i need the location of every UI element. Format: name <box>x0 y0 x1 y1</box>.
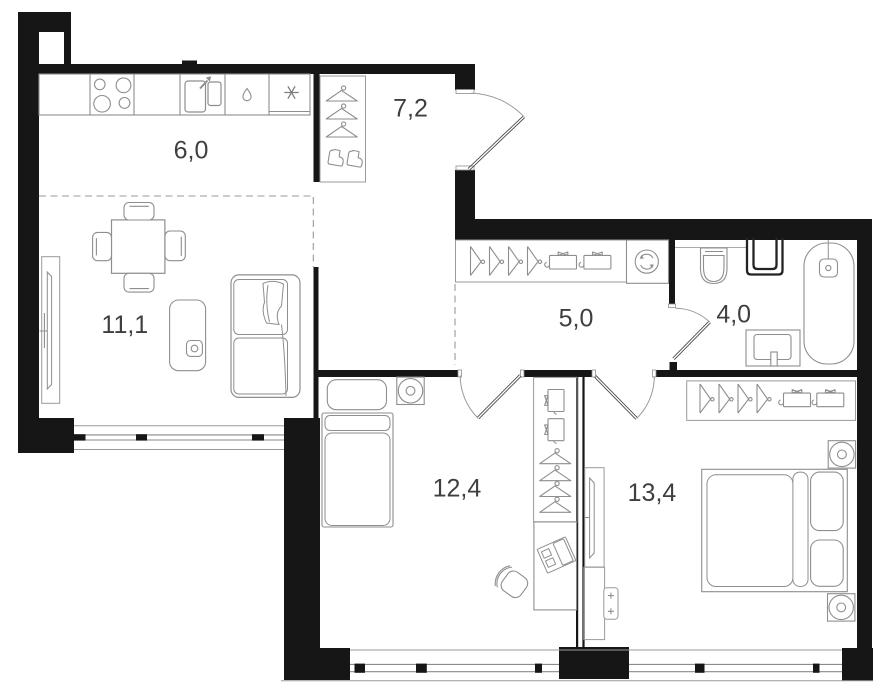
svg-text:6,0: 6,0 <box>174 137 209 165</box>
svg-text:12,4: 12,4 <box>433 475 482 503</box>
svg-text:13,4: 13,4 <box>628 479 677 507</box>
svg-text:5,0: 5,0 <box>559 305 594 333</box>
svg-text:7,2: 7,2 <box>393 95 428 123</box>
svg-text:11,1: 11,1 <box>101 311 148 339</box>
svg-text:4,0: 4,0 <box>716 301 751 329</box>
